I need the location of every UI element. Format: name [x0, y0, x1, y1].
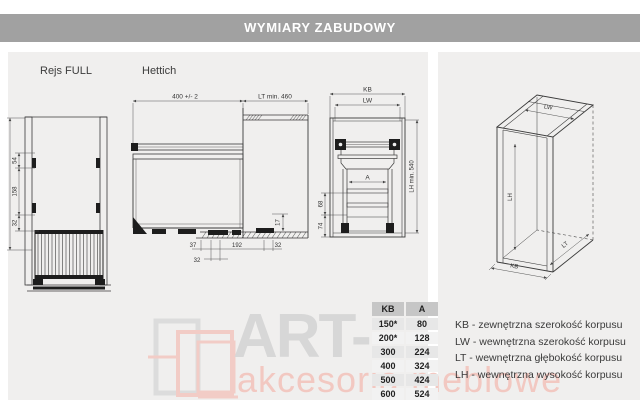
cell-kb: 200* — [372, 332, 404, 344]
legend-item-lw: LW - wewnętrzna szerokość korpusu — [455, 334, 626, 351]
dim-bottom-37: 37 — [190, 243, 197, 249]
legend-item-kb: KB - zewnętrzna szerokość korpusu — [455, 317, 626, 334]
legend-item-lt: LT - wewnętrzna głębokość korpusu — [455, 350, 626, 367]
dim-basket-54: 54 — [13, 157, 19, 164]
cell-a: 524 — [406, 388, 438, 400]
dim-kb-label: KB — [363, 87, 372, 94]
dim-left-68: 68 — [319, 200, 325, 207]
iso-lh-label: LH — [508, 193, 514, 201]
dim-width-400: 400 +/- 2 — [172, 94, 198, 101]
page-title: WYMIARY ZABUDOWY — [0, 14, 640, 42]
dim-basket-32: 32 — [13, 219, 19, 226]
label-hettich: Hettich — [142, 65, 176, 77]
dim-basket-158: 158 — [13, 186, 19, 197]
table-header-row: KB A — [372, 302, 438, 316]
table-row: 500 424 — [372, 374, 438, 386]
iso-lw-label: LW — [543, 104, 553, 111]
table-header-a: A — [406, 302, 438, 316]
dim-lw-label: LW — [363, 98, 373, 105]
label-rejs-full: Rejs FULL — [40, 65, 92, 77]
header-bar: WYMIARY ZABUDOWY — [0, 14, 640, 42]
dim-side-17: 17 — [276, 219, 282, 226]
dim-depth-lt460: LT min. 460 — [258, 94, 292, 101]
catalog-page: WYMIARY ZABUDOWY ART- akcesoria meblowe … — [0, 0, 640, 400]
table-row: 400 324 — [372, 360, 438, 372]
cell-kb: 400 — [372, 360, 404, 372]
legend-item-lh: LH - wewnętrzna wysokość korpusu — [455, 367, 626, 384]
table-header-kb: KB — [372, 302, 404, 316]
table-row: 600 524 — [372, 388, 438, 400]
table-row: 200* 128 — [372, 332, 438, 344]
cell-a: 128 — [406, 332, 438, 344]
dim-bottom-32b: 32 — [194, 258, 201, 264]
dim-left-74: 74 — [319, 222, 325, 229]
cabinet-isometric-drawing: LW LH LT KB — [462, 80, 632, 300]
dim-bottom-32a: 32 — [275, 243, 282, 249]
dim-bottom-192: 192 — [232, 243, 243, 249]
cell-a: 424 — [406, 374, 438, 386]
cabinet-front-view-drawing: KB LW LH min. 540 A 68 74 — [308, 85, 423, 250]
side-view-drawing: 400 +/- 2 LT min. 460 — [122, 88, 312, 263]
basket-front-view-drawing: 54 158 32 — [5, 103, 125, 303]
cell-kb: 300 — [372, 346, 404, 358]
cell-a: 324 — [406, 360, 438, 372]
table-row: 150* 80 — [372, 318, 438, 330]
iso-kb-label: KB — [510, 263, 519, 270]
cell-kb: 600 — [372, 388, 404, 400]
cell-kb: 500 — [372, 374, 404, 386]
table-row: 300 224 — [372, 346, 438, 358]
dim-lh-min-540: LH min. 540 — [410, 160, 416, 193]
cell-kb: 150* — [372, 318, 404, 330]
cell-a: 224 — [406, 346, 438, 358]
cell-a: 80 — [406, 318, 438, 330]
iso-lt-label: LT — [561, 241, 570, 250]
abbreviation-legend: KB - zewnętrzna szerokość korpusu LW - w… — [455, 317, 626, 383]
dim-a-label: A — [365, 175, 370, 182]
dimension-table: KB A 150* 80 200* 128 300 224 400 324 50 — [370, 300, 440, 400]
